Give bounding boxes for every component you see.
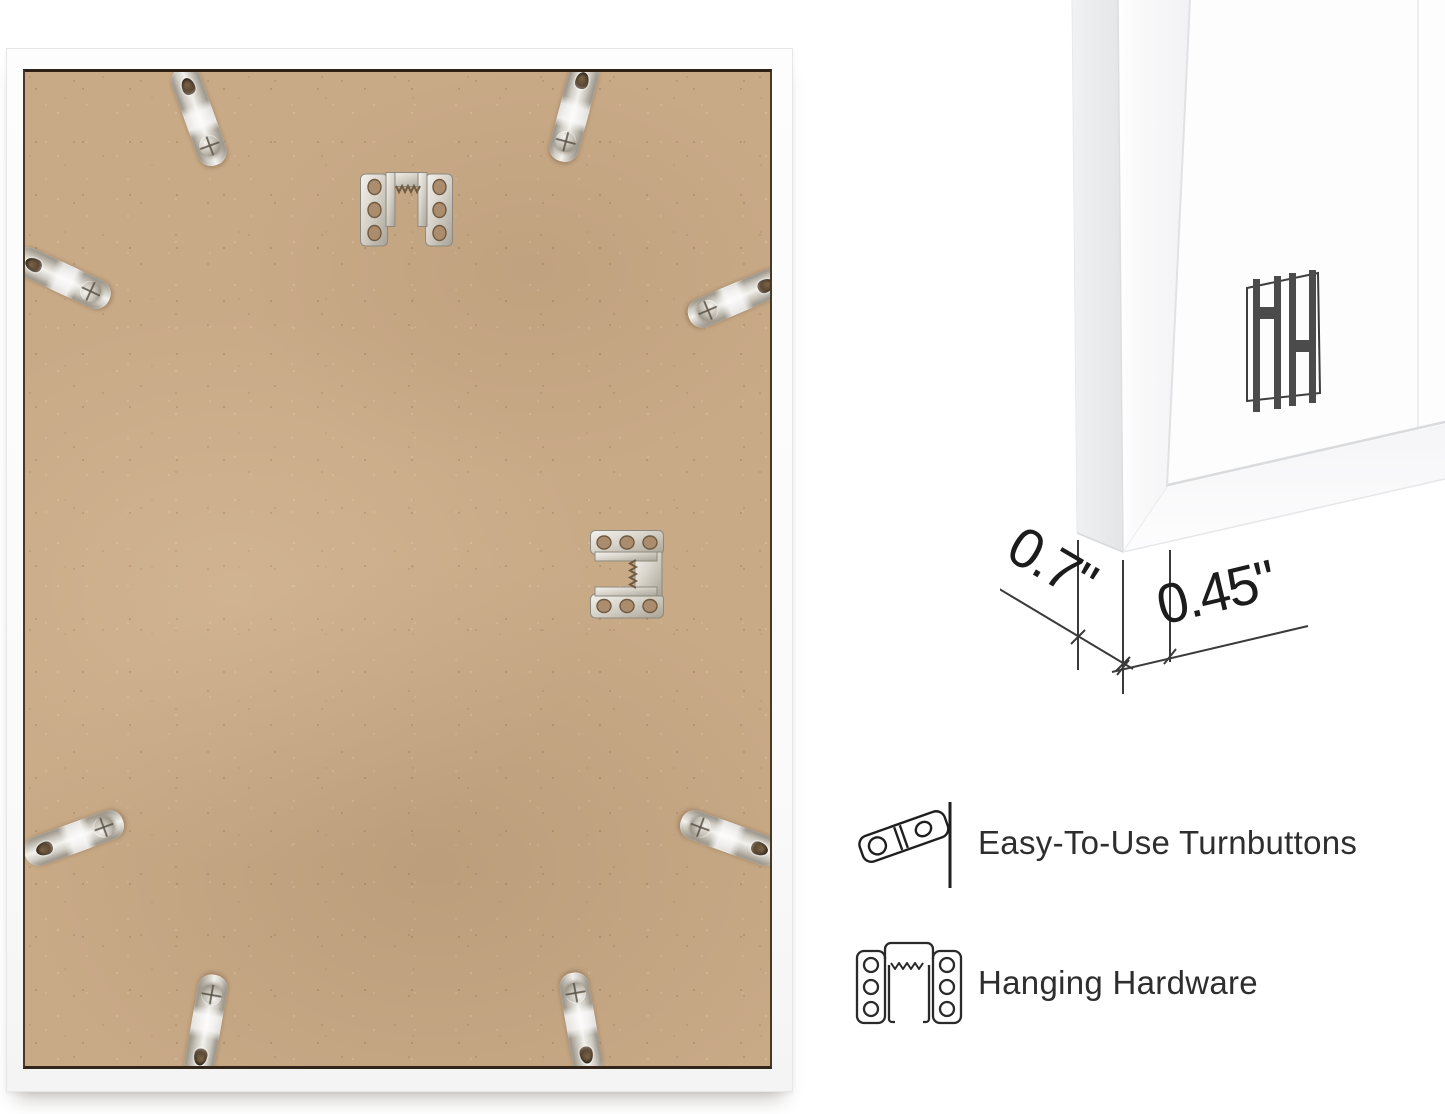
- turnbutton-bottom-left: [182, 972, 230, 1069]
- frame-side-face: [1072, 0, 1123, 552]
- turnbutton-top-right: [546, 69, 602, 165]
- turnbutton-left-lower: [23, 806, 128, 870]
- turnbutton-right-upper: [683, 264, 772, 332]
- frame-back-photo: [6, 48, 793, 1092]
- sawtooth-hanger-landscape: [589, 529, 665, 621]
- turnbutton-right-lower: [676, 806, 772, 870]
- sawtooth-hanger-portrait: [359, 171, 454, 249]
- hanging-hardware-icon: [853, 935, 965, 1029]
- mat-area: [1167, 0, 1445, 487]
- frame-corner-photo: 0.7" 0.45": [1000, 0, 1445, 710]
- turnbutton-icon: [855, 795, 955, 893]
- turnbutton-top-left: [167, 69, 231, 170]
- turnbutton-left-upper: [23, 242, 115, 313]
- mdf-backboard: [23, 69, 772, 1069]
- product-infographic: { "page": { "background_color": "#ffffff…: [0, 0, 1445, 1114]
- feature-label-hanging-hardware: Hanging Hardware: [978, 964, 1258, 1002]
- turnbutton-bottom-right: [557, 970, 605, 1069]
- feature-label-turnbuttons: Easy-To-Use Turnbuttons: [978, 824, 1357, 862]
